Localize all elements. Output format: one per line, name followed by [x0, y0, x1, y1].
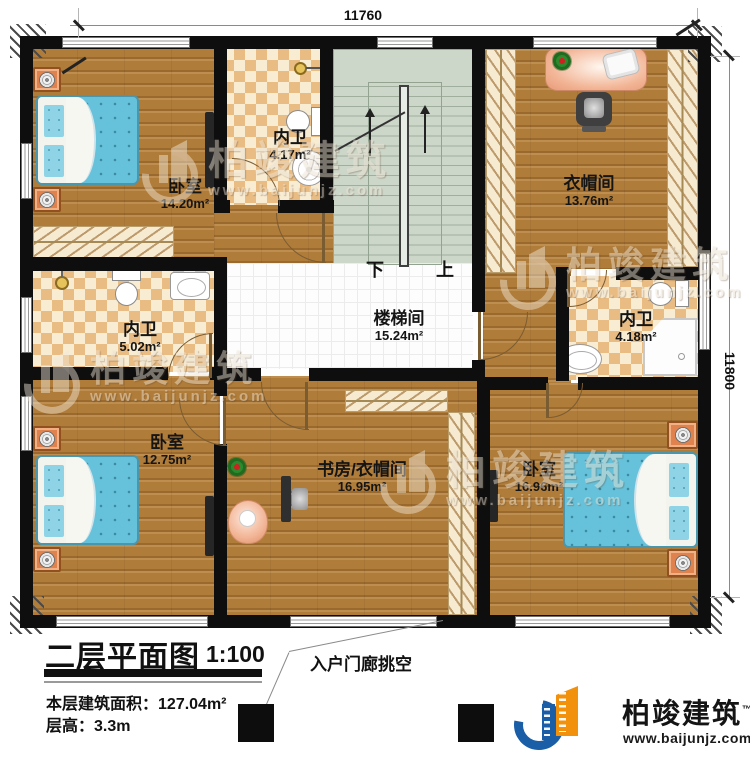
- wall-i-a: [214, 380, 227, 396]
- extension-line: [710, 597, 740, 598]
- room-label-bedroom-top-left: 卧室 14.20m²: [161, 177, 209, 211]
- pendant-lamp-icon: [55, 276, 69, 290]
- stair-up-label: 上: [436, 256, 454, 282]
- window-top-2: [377, 37, 433, 48]
- lamp-icon: [39, 431, 55, 447]
- window-bottom-3: [515, 616, 670, 627]
- lamp-icon: [675, 427, 691, 443]
- bed-top-left: [36, 95, 139, 185]
- brand-name: 柏竣建筑™: [622, 692, 750, 732]
- wall-a4: [214, 257, 227, 380]
- door-leaf-corridor: [322, 213, 325, 263]
- room-label-bath-right: 内卫 4.18m²: [615, 310, 656, 344]
- wardrobe-cloakroom-left: [486, 49, 516, 273]
- wall-h: [477, 390, 490, 615]
- nightstand: [33, 187, 61, 212]
- window-left-2: [21, 297, 32, 353]
- bed-bottom-right: [563, 452, 698, 548]
- toilet-icon: [112, 270, 142, 308]
- wall-b: [320, 49, 333, 213]
- nightstand: [33, 67, 61, 92]
- room-label-cloakroom: 衣帽间 13.76m²: [564, 174, 615, 208]
- window-right-1: [699, 253, 710, 350]
- porch-column: [458, 704, 494, 742]
- dimension-line-right: [729, 55, 730, 600]
- wall-b2a: [214, 200, 230, 213]
- leader-line: [265, 652, 289, 706]
- title-underline-thin: [44, 681, 262, 683]
- wall-bathleft-bottom-a: [20, 367, 168, 380]
- wall-c: [472, 49, 485, 312]
- window-left-3: [21, 396, 32, 451]
- room-label-bath-left: 内卫 5.02m²: [119, 320, 160, 354]
- window-left-1: [21, 143, 32, 199]
- nightstand: [33, 426, 61, 451]
- dimension-right-value: 11800: [722, 343, 738, 399]
- dimension-top-value: 11760: [328, 7, 398, 23]
- wardrobe-study-right: [448, 412, 475, 615]
- floor-plan-canvas: 下 上: [0, 0, 750, 768]
- room-label-bedroom-bottom-left: 卧室 12.75m²: [143, 433, 191, 467]
- stair-direction-arrow-left: [369, 116, 371, 156]
- wall-d-b: [309, 368, 477, 381]
- room-label-study-cloakroom: 书房/衣帽间 16.95m²: [317, 460, 407, 494]
- plan-scale: 1:100: [206, 641, 265, 668]
- monitor-icon: [281, 476, 291, 522]
- door-leaf-bath-right: [567, 270, 570, 307]
- tv-icon: [205, 496, 214, 556]
- stair-arrowhead-left: [365, 108, 375, 117]
- wall-g-a: [477, 377, 548, 390]
- dimension-line-top: [70, 25, 700, 26]
- wall-a2: [20, 257, 227, 271]
- wall-g-b: [578, 377, 711, 390]
- wardrobe-study-top: [345, 390, 448, 412]
- sink-icon: [170, 272, 210, 300]
- porch-column: [238, 704, 274, 742]
- brand-url: www.baijunjz.com: [623, 730, 750, 746]
- extension-line: [710, 56, 740, 57]
- bed-bottom-left: [36, 455, 139, 545]
- plant-icon: [228, 458, 246, 476]
- floor-study: [223, 376, 480, 617]
- window-top-1: [62, 37, 190, 48]
- desk-chair: [228, 500, 268, 544]
- door-leaf-east-hall: [478, 312, 481, 360]
- brand-logo-windows: [559, 692, 566, 732]
- wall-e-b: [616, 267, 711, 280]
- lamp-icon: [39, 192, 55, 208]
- lamp-icon: [675, 555, 691, 571]
- wardrobe-cloakroom-right: [667, 49, 698, 267]
- wall-i-b: [214, 444, 227, 615]
- stair-arrowhead-right: [420, 105, 430, 114]
- tv-icon: [489, 470, 498, 522]
- nightstand: [667, 549, 698, 577]
- window-bottom-1: [56, 616, 208, 627]
- wall-a: [214, 49, 227, 212]
- room-label-bedroom-bottom-right: 卧室 16.96m²: [515, 460, 563, 494]
- lamp-icon: [39, 72, 55, 88]
- title-underline: [44, 669, 262, 677]
- floor-height-text: 层高：3.3m: [46, 712, 130, 736]
- nightstand: [33, 547, 61, 572]
- door-leaf-bedroom-bl: [223, 398, 226, 446]
- wall-d-a: [227, 368, 261, 381]
- wardrobe-bedroom-top-left: [33, 226, 174, 258]
- nightstand: [667, 421, 698, 449]
- door-leaf-bath-left: [209, 333, 212, 378]
- porch-note: 入户门廊挑空: [310, 650, 412, 675]
- stair-down-label: 下: [366, 256, 384, 282]
- door-leaf-study: [305, 382, 308, 430]
- chair: [576, 92, 612, 126]
- window-top-3: [533, 37, 657, 48]
- floor-area-text: 本层建筑面积：127.04m²: [46, 690, 227, 714]
- plant-icon: [553, 52, 571, 70]
- door-leaf-bedroom-br: [546, 383, 549, 418]
- wall-b2b: [278, 200, 334, 213]
- monitor-base: [292, 488, 308, 510]
- room-label-bath-top: 内卫 4.17m²: [269, 128, 310, 162]
- lamp-icon: [39, 552, 55, 568]
- toilet-icon: [648, 280, 690, 308]
- room-label-stair-hall: 楼梯间 15.24m²: [374, 309, 425, 343]
- brand-logo-windows: [544, 708, 550, 736]
- stair-direction-arrow-right: [424, 113, 426, 153]
